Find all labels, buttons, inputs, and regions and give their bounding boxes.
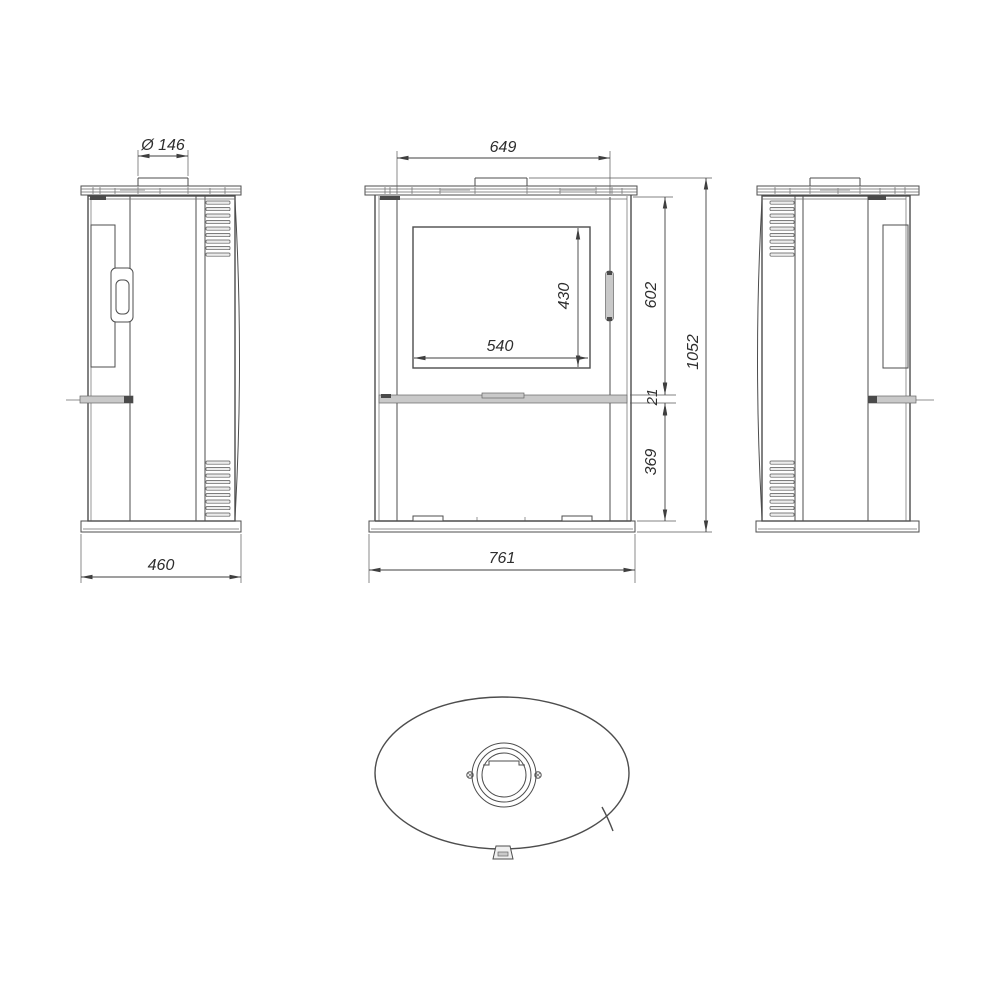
flue-collar-front: [475, 178, 527, 186]
top-outline: [375, 697, 629, 849]
base-plinth: [369, 521, 635, 532]
panel-seams: [130, 196, 205, 521]
vent-grille-bottom: [206, 461, 230, 516]
dim-lower-height-label: 369: [643, 449, 660, 476]
dim-overall-height-label: 1052: [685, 334, 702, 370]
dim-glass-width-label: 540: [487, 338, 514, 355]
flue-collar-side: [138, 178, 188, 186]
dim-lower-height: 369: [637, 403, 676, 521]
foot-right: [562, 516, 592, 521]
technical-drawing: Ø 146 460: [0, 0, 1000, 1000]
dim-overall-width: 761: [369, 534, 635, 583]
flue-collar-side: [810, 178, 860, 186]
top-plate: [81, 186, 241, 195]
front-knob: [493, 846, 513, 859]
damper-plate: [483, 761, 525, 765]
dim-overall-width-label: 761: [489, 550, 516, 567]
dim-glass-width: 540: [414, 338, 588, 358]
left-side-view: Ø 146 460: [66, 137, 241, 583]
vent-grille-bottom: [770, 461, 794, 516]
dim-depth-label: 460: [148, 557, 175, 574]
side-door-frame: [883, 225, 908, 368]
stove-body: [88, 196, 235, 521]
stove-dimension-drawing: Ø 146 460: [0, 0, 1000, 1000]
dim-depth: 460: [81, 534, 241, 583]
top-plate-ticks: [93, 187, 225, 194]
dim-door-height-label: 602: [643, 282, 660, 309]
foot-left: [413, 516, 443, 521]
vent-grille-top: [770, 201, 794, 256]
dim-glass-height-label: 430: [556, 283, 573, 310]
dim-overall-height: 1052: [529, 178, 712, 532]
top-view: [375, 697, 629, 859]
dim-flue-diameter-label: Ø 146: [140, 137, 185, 154]
dim-flue-diameter: Ø 146: [138, 137, 188, 176]
stove-body: [762, 196, 910, 521]
door-handle: [606, 271, 614, 321]
dim-door-height: 602: [633, 197, 673, 395]
flue-collar-mid: [477, 748, 531, 802]
vent-grille-top: [206, 201, 230, 256]
dim-band-height-label: 21: [644, 389, 661, 407]
base-plinth: [81, 521, 241, 532]
dim-band-height: 21: [630, 381, 676, 417]
door-latch: [868, 196, 886, 200]
panel-seams: [795, 196, 868, 521]
base-plinth: [756, 521, 919, 532]
front-view: 649 540 430 602 21 369: [365, 139, 712, 583]
flue-collar-inner: [482, 753, 526, 797]
right-side-view: [756, 178, 934, 532]
dim-top-width-label: 649: [490, 139, 517, 156]
dim-glass-height: 430: [556, 228, 578, 367]
